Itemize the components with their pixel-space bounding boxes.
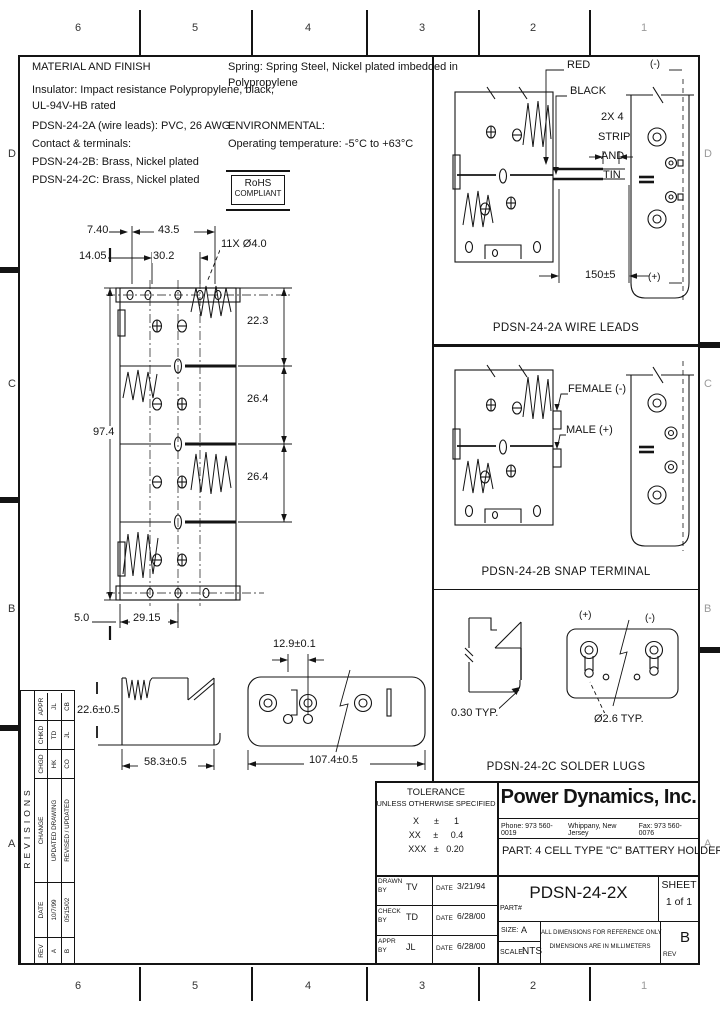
dim-label: Ø2.6 TYP. <box>593 713 645 726</box>
fold-mark <box>700 342 720 348</box>
sign-role: DRAWN <box>378 878 402 885</box>
zone-tick <box>366 10 368 55</box>
dimension-arrows <box>512 687 521 695</box>
dim-label: 150±5 <box>584 269 617 282</box>
sign-date-label: DATE <box>436 945 453 952</box>
revisions-header: CHANGE <box>35 778 48 882</box>
revisions-header: DATE <box>35 882 48 937</box>
frame-line <box>660 921 661 965</box>
polarity-label: (+) <box>579 610 592 622</box>
dim-label: 30.2 <box>152 250 175 263</box>
spring-symbol <box>523 375 551 419</box>
size-value: A <box>521 925 527 935</box>
rohs-rule <box>226 209 290 211</box>
zone-number-bottom: 4 <box>305 980 311 993</box>
dim-label: 26.4 <box>246 393 269 406</box>
zone-tick <box>366 967 368 1001</box>
fold-mark <box>0 267 18 273</box>
strip-note: 2X 4 <box>601 111 624 124</box>
zone-letter-left: A <box>8 838 15 851</box>
revision-cell: JL <box>62 720 75 749</box>
break-line <box>613 620 629 706</box>
zone-tick <box>589 967 591 1001</box>
note-line: Operating temperature: -5°C to +63°C <box>228 138 413 151</box>
dim-label: 7.40 <box>86 224 109 237</box>
revision-cell: 05/15/02 <box>62 882 75 937</box>
spring-symbol <box>463 459 493 493</box>
zone-number-top: 5 <box>192 22 198 35</box>
revision-cell: UPDATED DRAWING <box>48 778 61 882</box>
revision-cell: REVISED / UPDATED <box>62 778 75 882</box>
plus-contact <box>178 398 187 410</box>
dimension-arrows <box>543 154 637 279</box>
notes-env-title: ENVIRONMENTAL: <box>228 120 325 133</box>
dim-label: 43.5 <box>157 224 180 237</box>
leader-line <box>558 394 568 407</box>
zone-number-top: 4 <box>305 22 311 35</box>
plus-contact <box>507 197 516 209</box>
minus-contact <box>153 398 162 410</box>
fold-mark <box>0 497 18 503</box>
scale-value: NTS <box>522 946 542 958</box>
dim-label: 0.30 TYP. <box>450 707 499 720</box>
zone-number-bottom: 6 <box>75 980 81 993</box>
frame-line <box>497 941 540 942</box>
note-line: Contact & terminals: <box>32 138 131 151</box>
polarity-label: (-) <box>650 59 660 71</box>
zone-number-top: 3 <box>419 22 425 35</box>
revision-cell: CO <box>62 749 75 778</box>
zone-tick <box>139 10 141 55</box>
zone-letter-left: C <box>8 378 16 391</box>
sign-date-label: DATE <box>436 885 453 892</box>
zone-tick <box>478 967 480 1001</box>
wire-red-label: RED <box>567 59 590 72</box>
female-terminal-label: FEMALE (-) <box>568 383 626 396</box>
rohs-label: COMPLIANT <box>232 189 284 198</box>
frame-line <box>375 875 700 877</box>
reference-note: ALL DIMENSIONS FOR REFERENCE ONLY <box>541 930 659 937</box>
dim-label: 14.05 <box>78 250 108 263</box>
zone-letter-right: B <box>704 603 711 616</box>
tolerance-line: XX ± 0.4 <box>375 830 497 840</box>
section-caption: PDSN-24-2C SOLDER LUGS <box>440 761 692 774</box>
zone-letter-right: D <box>704 148 712 161</box>
part-description: PART: 4 CELL TYPE "C" BATTERY HOLDER <box>502 845 720 858</box>
spring-symbol <box>123 532 158 578</box>
plus-contact <box>507 465 516 477</box>
zone-number-top: 6 <box>75 22 81 35</box>
sign-initials: JL <box>406 942 416 952</box>
revisions-header: CHGD <box>35 749 48 778</box>
rohs-rule <box>226 170 290 172</box>
frame-line <box>497 838 700 839</box>
revision-cell: 10/7/99 <box>48 882 61 937</box>
company-contact-row: Phone: 973 560-0019 Whippany, New Jersey… <box>501 823 697 837</box>
rohs-badge: RoHS COMPLIANT <box>231 175 285 205</box>
revision-cell: JL <box>48 693 61 720</box>
zone-number-bottom: 1 <box>641 980 647 993</box>
sign-role: BY <box>378 917 387 924</box>
company-name: Power Dynamics, Inc. <box>497 786 700 809</box>
note-line: PDSN-24-2A (wire leads): PVC, 26 AWG <box>32 120 230 133</box>
sign-initials: TV <box>406 882 418 892</box>
note-line: Spring: Spring Steel, Nickel plated imbe… <box>228 61 458 74</box>
units-note: DIMENSIONS ARE IN MILLIMETERS <box>541 944 659 951</box>
part-number: PDSN-24-2X <box>499 883 658 903</box>
zone-number-bottom: 2 <box>530 980 536 993</box>
notes-title: MATERIAL AND FINISH <box>32 61 151 74</box>
male-terminal <box>553 449 561 467</box>
plus-contact <box>178 554 187 566</box>
sign-date: 6/28/00 <box>457 942 485 952</box>
male-terminal-label: MALE (+) <box>566 424 613 437</box>
frame-line <box>540 921 541 965</box>
zone-tick <box>251 967 253 1001</box>
revisions-header: REV <box>35 937 48 964</box>
sign-role: BY <box>378 947 387 954</box>
break-line <box>519 365 527 377</box>
minus-contact <box>178 320 187 332</box>
plus-contact <box>178 476 187 488</box>
break-line <box>519 87 527 99</box>
break-line <box>487 365 495 377</box>
frame-line <box>497 818 700 819</box>
size-label: SIZE: <box>501 927 519 935</box>
part-number-label: PART# <box>500 905 522 913</box>
sign-role: APPR <box>378 938 396 945</box>
company-phone: Phone: 973 560-0019 <box>501 823 568 837</box>
zone-number-bottom: 5 <box>192 980 198 993</box>
frame-line <box>375 935 497 936</box>
frame-line <box>375 905 497 906</box>
sign-date-label: DATE <box>436 915 453 922</box>
plus-contact <box>487 399 496 411</box>
rev-label: REV <box>663 951 676 958</box>
company-fax: Fax: 973 560-0076 <box>639 823 697 837</box>
zone-number-bottom: 3 <box>419 980 425 993</box>
tolerance-subtitle: UNLESS OTHERWISE SPECIFIED <box>375 800 497 809</box>
sign-role: BY <box>378 887 387 894</box>
strip-note: AND <box>601 150 624 163</box>
section-caption: PDSN-24-2B SNAP TERMINAL <box>440 566 692 579</box>
note-line: PDSN-24-2B: Brass, Nickel plated <box>32 156 199 169</box>
zone-letter-right: C <box>704 378 712 391</box>
solder-lugs-drawing <box>433 590 699 782</box>
plus-contact <box>153 320 162 332</box>
fold-mark <box>0 725 18 731</box>
rohs-label: RoHS <box>232 178 284 189</box>
plus-contact <box>487 126 496 138</box>
dim-label: 26.4 <box>246 471 269 484</box>
note-line: Polypropylene <box>228 77 298 90</box>
leader-line <box>558 435 566 445</box>
zone-tick <box>589 10 591 55</box>
dim-label: 22.6±0.5 <box>76 704 121 717</box>
female-terminal <box>553 411 561 429</box>
revision-cell: A <box>48 937 61 964</box>
revision-cell: CB <box>62 693 75 720</box>
revisions-header: APPR <box>35 693 48 720</box>
zone-number-top: 2 <box>530 22 536 35</box>
zone-tick <box>139 967 141 1001</box>
dim-label: 107.4±0.5 <box>308 754 359 767</box>
tolerance-title: TOLERANCE <box>375 788 497 799</box>
dim-label: 5.0 <box>73 612 90 625</box>
sign-role: CHECK <box>378 908 401 915</box>
polarity-label: (+) <box>648 272 661 284</box>
break-line <box>487 87 495 99</box>
minus-contact <box>513 129 522 141</box>
zone-number-top: 1 <box>641 22 647 35</box>
wire-leads-drawing <box>433 57 699 347</box>
break-line <box>336 670 350 752</box>
fold-mark <box>700 647 720 653</box>
spring-symbol <box>123 370 157 402</box>
revision-cell: TD <box>48 720 61 749</box>
sheet-label: SHEET <box>658 879 700 891</box>
revisions-header: CHKD <box>35 720 48 749</box>
rev-value: B <box>680 929 690 946</box>
zone-letter-left: B <box>8 603 15 616</box>
section-caption: PDSN-24-2A WIRE LEADS <box>440 322 692 335</box>
sheet-value: 1 of 1 <box>658 896 700 908</box>
minus-contact <box>513 402 522 414</box>
dim-label: 29.15 <box>132 612 162 625</box>
tolerance-line: XXX ± 0.20 <box>375 844 497 854</box>
dim-label: 58.3±0.5 <box>143 756 188 769</box>
sign-date: 3/21/94 <box>457 882 485 892</box>
dim-label: 11X Ø4.0 <box>220 238 268 251</box>
revision-cell: B <box>62 937 75 964</box>
dim-label: 97.4 <box>92 426 115 439</box>
spring-symbol <box>523 101 551 147</box>
sign-initials: TD <box>406 912 418 922</box>
company-city: Whippany, New Jersey <box>568 823 639 837</box>
polarity-label: (-) <box>645 613 655 625</box>
dim-label: 12.9±0.1 <box>272 638 317 651</box>
frame-line <box>497 921 700 922</box>
strip-note: TIN <box>603 169 621 182</box>
zone-letter-left: D <box>8 148 16 161</box>
drawing-sheet: 6 5 4 3 2 1 6 5 4 3 2 1 D C B A D C B A … <box>0 0 720 1012</box>
minus-contact <box>153 554 162 566</box>
frame-line <box>432 875 433 965</box>
revision-cell: HK <box>48 749 61 778</box>
note-line: PDSN-24-2C: Brass, Nickel plated <box>32 174 200 187</box>
zone-tick <box>478 10 480 55</box>
wire-black-label: BLACK <box>570 85 606 98</box>
dim-label: 22.3 <box>246 315 269 328</box>
revisions-title: REVISIONS <box>21 691 35 964</box>
minus-contact <box>153 476 162 488</box>
strip-note: STRIP <box>598 131 630 144</box>
tolerance-line: X ± 1 <box>375 816 497 826</box>
zone-tick <box>251 10 253 55</box>
sign-date: 6/28/00 <box>457 912 485 922</box>
snap-terminal-drawing <box>433 345 699 593</box>
spring-symbol <box>191 452 231 494</box>
spring-symbol <box>126 678 152 700</box>
leader-line <box>556 96 567 171</box>
revisions-table: REVISIONS REV DATE CHANGE CHGD CHKD APPR… <box>20 690 75 965</box>
note-line: UL-94V-HB rated <box>32 100 116 113</box>
